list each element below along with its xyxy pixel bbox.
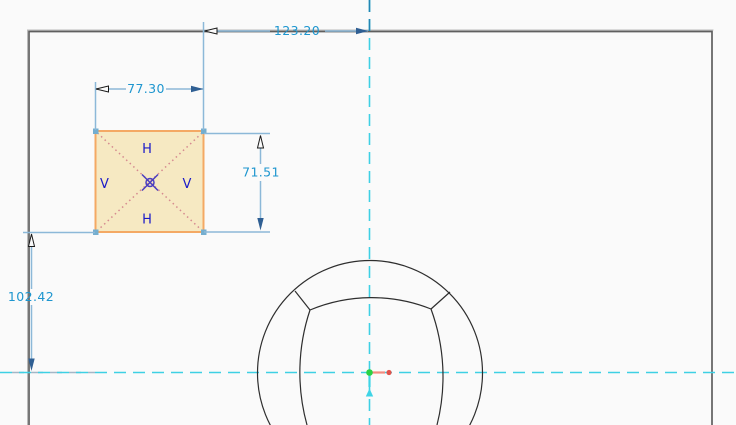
constraint-label-h-top[interactable]: H	[142, 142, 152, 157]
dimension-value[interactable]: 77.30	[127, 81, 165, 96]
arrow-up-icon	[258, 136, 264, 149]
arrow-left-icon	[96, 86, 109, 92]
origin-point[interactable]	[366, 369, 373, 376]
sketch-canvas: H V V H 123.20 77.30 71.51	[0, 0, 736, 425]
dimension-value[interactable]: 102.42	[8, 289, 54, 304]
sketch-square: H V V H	[93, 129, 207, 236]
origin-marker[interactable]	[366, 369, 392, 396]
dimension-square-right-to-centerline[interactable]: 123.20	[204, 22, 369, 130]
dimension-square-width[interactable]: 77.30	[96, 81, 204, 130]
dimension-value[interactable]: 71.51	[242, 165, 280, 180]
arrow-left-icon	[205, 28, 218, 34]
left-spoke-line[interactable]	[295, 291, 310, 310]
dimension-value[interactable]: 123.20	[274, 23, 320, 38]
arrow-down-icon	[257, 218, 263, 231]
dimension-square-bottom-to-centerline[interactable]: 102.42	[8, 233, 95, 372]
origin-y-axis-arrow-icon	[366, 389, 373, 397]
arrow-right-icon	[191, 86, 204, 92]
right-spoke-line[interactable]	[431, 292, 450, 309]
arrow-right-icon	[356, 28, 369, 34]
constraint-label-h-bottom[interactable]: H	[142, 213, 152, 228]
inner-profile-arcs[interactable]	[300, 298, 443, 425]
origin-x-axis-dot	[386, 370, 391, 375]
constraint-label-v-right[interactable]: V	[183, 177, 192, 192]
dimension-square-height[interactable]: 71.51	[204, 134, 280, 233]
constraint-label-v-left[interactable]: V	[100, 177, 109, 192]
